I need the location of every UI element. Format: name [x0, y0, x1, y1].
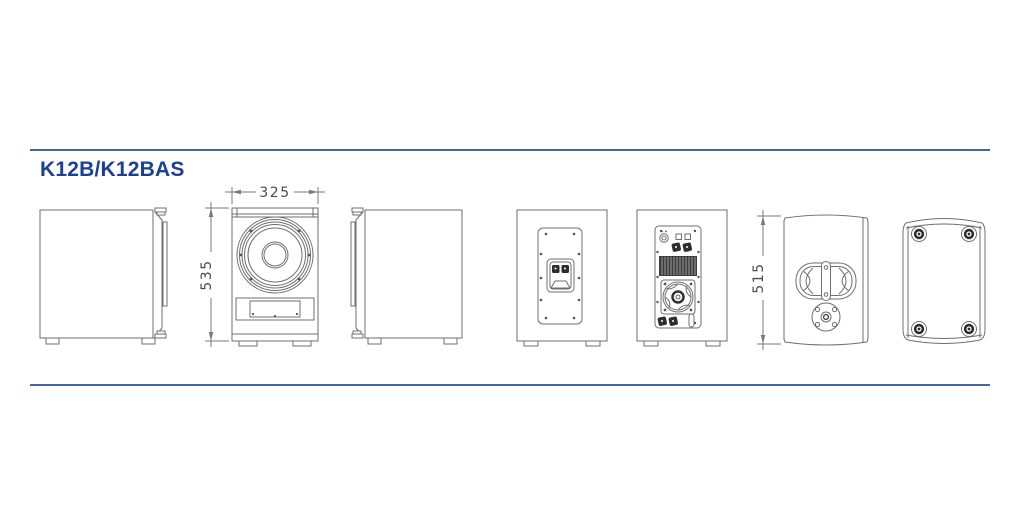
height-dimension-515: 515: [751, 210, 781, 350]
xlr-connectors-top: [671, 242, 692, 252]
bass-port: [236, 298, 314, 320]
rubber-foot: [524, 341, 538, 346]
dim-front-height-label: 535: [199, 259, 215, 290]
rubber-foot: [293, 341, 311, 346]
height-dimension: 535: [199, 202, 229, 347]
woofer: [237, 217, 313, 293]
amplifier-panel: [655, 226, 701, 328]
heatsink: [659, 256, 697, 276]
rubber-foot: [706, 341, 720, 346]
cooling-fan: [661, 280, 695, 314]
view-bottom-drawing: [903, 219, 985, 344]
rubber-foot-bottom: [912, 227, 927, 242]
view-front-drawing: 325 535: [199, 185, 325, 347]
rubber-foot: [142, 338, 155, 344]
view-side-left-drawing: [40, 208, 167, 344]
xlr-connectors-bottom: [657, 316, 678, 326]
grille-clip-bottom: [155, 334, 166, 338]
rubber-foot: [644, 341, 658, 346]
rubber-foot: [586, 341, 600, 346]
input-plate: [538, 228, 582, 324]
pole-mount-socket: [812, 303, 840, 331]
view-side-handle-drawing: 515: [751, 210, 868, 350]
grille-clip-bottom: [352, 334, 363, 338]
rubber-foot-bottom: [962, 322, 977, 337]
rubber-foot: [239, 341, 257, 346]
width-dimension: 325: [225, 185, 325, 204]
grille-edge: [163, 222, 167, 306]
rubber-foot: [444, 338, 457, 344]
dim-side-height-label: 515: [751, 262, 767, 293]
grille-clip-top: [155, 208, 166, 212]
dim-front-width-label: 325: [259, 185, 290, 201]
power-inlet: [689, 314, 694, 327]
front-baffle-profile: [356, 212, 363, 336]
switch: [676, 234, 682, 240]
side-handle: [796, 262, 856, 301]
view-side-right-drawing: [351, 208, 462, 344]
grille-clip-top: [352, 208, 363, 212]
rubber-foot-bottom: [912, 322, 927, 337]
switch: [685, 234, 691, 240]
grille-edge: [351, 222, 355, 306]
volume-knob: [660, 231, 668, 243]
speakon-recess: [547, 259, 574, 292]
rubber-foot: [368, 338, 381, 344]
view-rear-input-panel-drawing: [517, 210, 607, 346]
front-baffle-profile: [155, 212, 162, 336]
view-rear-amplifier-drawing: [637, 210, 727, 346]
rubber-foot-bottom: [962, 227, 977, 242]
datasheet-page: K12B/K12BAS: [0, 0, 1024, 524]
speaker-orthographic-views: 325 535: [0, 0, 1024, 524]
rubber-foot: [46, 338, 59, 344]
